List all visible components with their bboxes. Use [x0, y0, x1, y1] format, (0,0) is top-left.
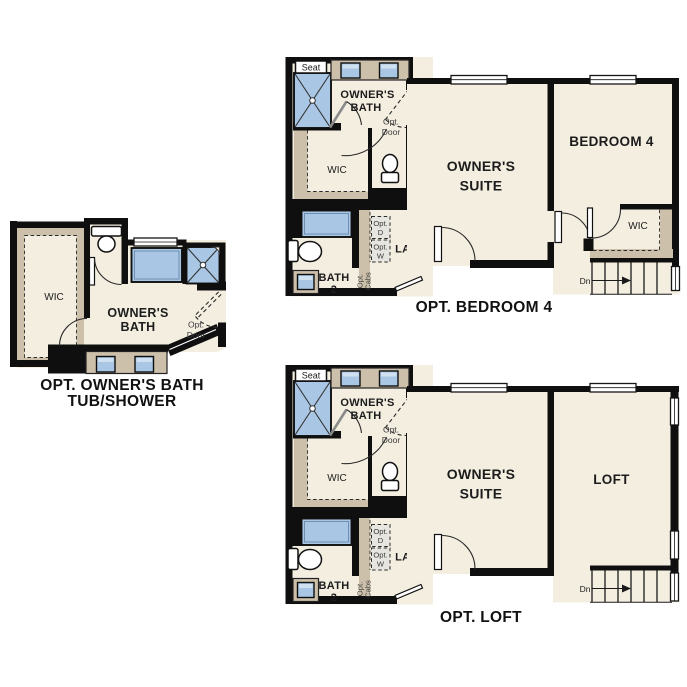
suite-door-leaf	[435, 227, 442, 262]
plan-tub-shower: WIC OWNER'S BATH Opt. Door OPT. OWNER'S …	[10, 218, 226, 410]
ts-vanity-sink-1-rim	[98, 358, 114, 362]
seat-label: Seat	[302, 63, 321, 73]
suite-bedroom4-wall-upper	[548, 82, 555, 211]
suite-loft-wall	[548, 390, 555, 572]
owners-suite-label-1: OWNER'S	[447, 158, 515, 174]
bath2-sink-rim	[299, 276, 313, 280]
toilet-tank-icon	[382, 173, 399, 183]
ts-toilet-bowl-icon	[98, 236, 115, 252]
b4-wic-carpet-right	[660, 209, 672, 251]
ts-toilet-tank-icon	[92, 227, 122, 237]
ts-title-line2: TUB/SHOWER	[68, 393, 177, 410]
window	[671, 531, 679, 559]
bedroom4-door-leaf	[555, 212, 562, 243]
stairs-dn-label: Dn	[580, 276, 591, 286]
ts-owners-bath-label-1: OWNER'S	[107, 306, 168, 320]
suite-and-stairs-loft-copy	[407, 384, 679, 603]
vanity-sink-1-rim	[343, 65, 359, 69]
bath2-laundry-divider	[352, 210, 359, 268]
ts-owners-bath-label-2: BATH	[121, 320, 156, 334]
window	[451, 76, 507, 85]
suite-top-wall	[407, 78, 679, 84]
bath2-toilet-bowl-icon	[299, 242, 322, 262]
vanity-sink-2-rim	[381, 65, 397, 69]
bedroom4-label: BEDROOM 4	[569, 134, 654, 149]
bedroom4-right-wall	[672, 82, 679, 266]
shower-drain-icon	[310, 98, 316, 104]
ts-opt-door-label-2: Door	[187, 330, 206, 340]
window	[671, 573, 679, 601]
floorplans-canvas: Seat OWNER'S BATH Opt. Door WI	[0, 0, 687, 687]
suite-and-stairs: Dn OWNER'S SUITE	[407, 76, 679, 295]
ts-shower-drain-icon	[200, 262, 206, 268]
opt-w-label-1: Opt.	[373, 243, 387, 252]
ts-top-wall	[10, 222, 90, 229]
bath2-tub	[302, 211, 352, 238]
ts-toilet-right-wall	[122, 218, 129, 284]
window	[134, 238, 177, 246]
suite-bottom-wall	[470, 260, 554, 268]
ts-wic-label: WIC	[44, 292, 63, 303]
opt-d-label-2: D	[378, 228, 384, 237]
ts-left-wall	[10, 221, 17, 367]
ts-toilet-door-leaf	[90, 258, 95, 286]
hall-wall-stub	[584, 239, 594, 252]
owners-bath-label-2: BATH	[351, 102, 382, 114]
ts-wic-bottom-wall	[10, 360, 50, 367]
ts-toilet-top-wall	[84, 218, 128, 225]
opt-cabs-label-2: Cabs	[364, 272, 373, 290]
owners-suite-label-2: SUITE	[460, 178, 503, 194]
b4-wic-label: WIC	[628, 221, 647, 232]
window	[672, 267, 680, 291]
plan-bedroom4-title: OPT. BEDROOM 4	[416, 299, 553, 316]
ts-title-line1: OPT. OWNER'S BATH	[40, 377, 204, 394]
ts-corner-block	[48, 345, 86, 374]
floorplan-sheet: Seat OWNER'S BATH Opt. Door WI	[0, 0, 687, 687]
stair-hall-floor	[553, 260, 679, 295]
b4-wic-top-wall	[620, 204, 672, 210]
wic-carpet-bottom	[294, 192, 368, 201]
loft-label: LOFT	[593, 472, 630, 487]
opt-w-label-2: W	[377, 252, 385, 261]
owners-bath-label-1: OWNER'S	[340, 89, 394, 101]
toilet-room-wall	[368, 128, 372, 188]
toilet-room-bottom-wall	[368, 188, 413, 199]
stairs-top-wall	[590, 258, 673, 263]
loft-right-wall-2	[671, 425, 679, 531]
laundry-strip	[359, 210, 370, 268]
bath2-label-2: 2	[331, 284, 337, 296]
suite-bedroom4-wall-lower	[548, 242, 555, 268]
wic-carpet-left	[294, 130, 308, 199]
opt-door-label-1: Opt.	[383, 117, 399, 127]
opt-door-label-2: Door	[382, 127, 401, 137]
bath2-label-1: BATH	[319, 272, 350, 284]
plan-loft-title: OPT. LOFT	[440, 609, 522, 626]
window	[671, 398, 679, 425]
loft-right-wall-1	[671, 390, 679, 398]
b4-wic-door-leaf	[588, 208, 593, 238]
bath2-toilet-tank-icon	[288, 241, 298, 262]
tub-wall-block	[286, 207, 303, 238]
toilet-bowl-icon	[383, 155, 398, 173]
ts-vanity-sink-2-rim	[137, 358, 153, 362]
ts-tub	[132, 248, 183, 282]
loft-right-wall-3	[671, 559, 679, 573]
opt-d-label-1: Opt.	[373, 219, 387, 228]
window	[590, 76, 636, 85]
ts-opt-door-label-1: Opt.	[188, 320, 204, 330]
wic-label: WIC	[327, 165, 346, 176]
